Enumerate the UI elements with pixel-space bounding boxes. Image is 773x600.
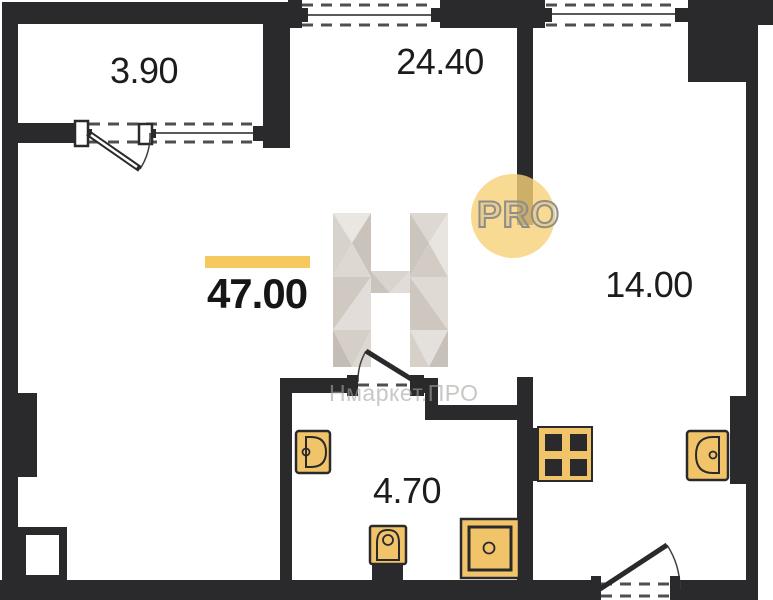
entrance-door — [591, 545, 680, 600]
kitchen-sink-icon — [687, 431, 728, 480]
floor-plan: PRO 3.90 24.40 14.00 4.70 47.00 Нмаркет.… — [0, 0, 773, 600]
stove-icon — [538, 427, 592, 481]
pro-badge-label: PRO — [477, 194, 560, 236]
shower-tray-icon — [461, 519, 519, 578]
room-label-bathroom: 4.70 — [373, 470, 441, 512]
vent-shaft — [26, 535, 59, 575]
bath-sink-icon — [296, 431, 330, 473]
total-area-underline — [205, 256, 310, 268]
room-label-balcony: 3.90 — [110, 50, 178, 92]
toilet-icon — [370, 526, 406, 564]
room-label-living-room: 24.40 — [396, 41, 484, 83]
hmarket-logo-watermark — [333, 213, 448, 367]
room-label-kitchen-living: 14.00 — [605, 264, 693, 306]
total-area-label: 47.00 — [207, 270, 307, 318]
pro-badge: PRO — [471, 174, 555, 258]
site-watermark-text: Нмаркет.ПРО — [329, 380, 479, 407]
